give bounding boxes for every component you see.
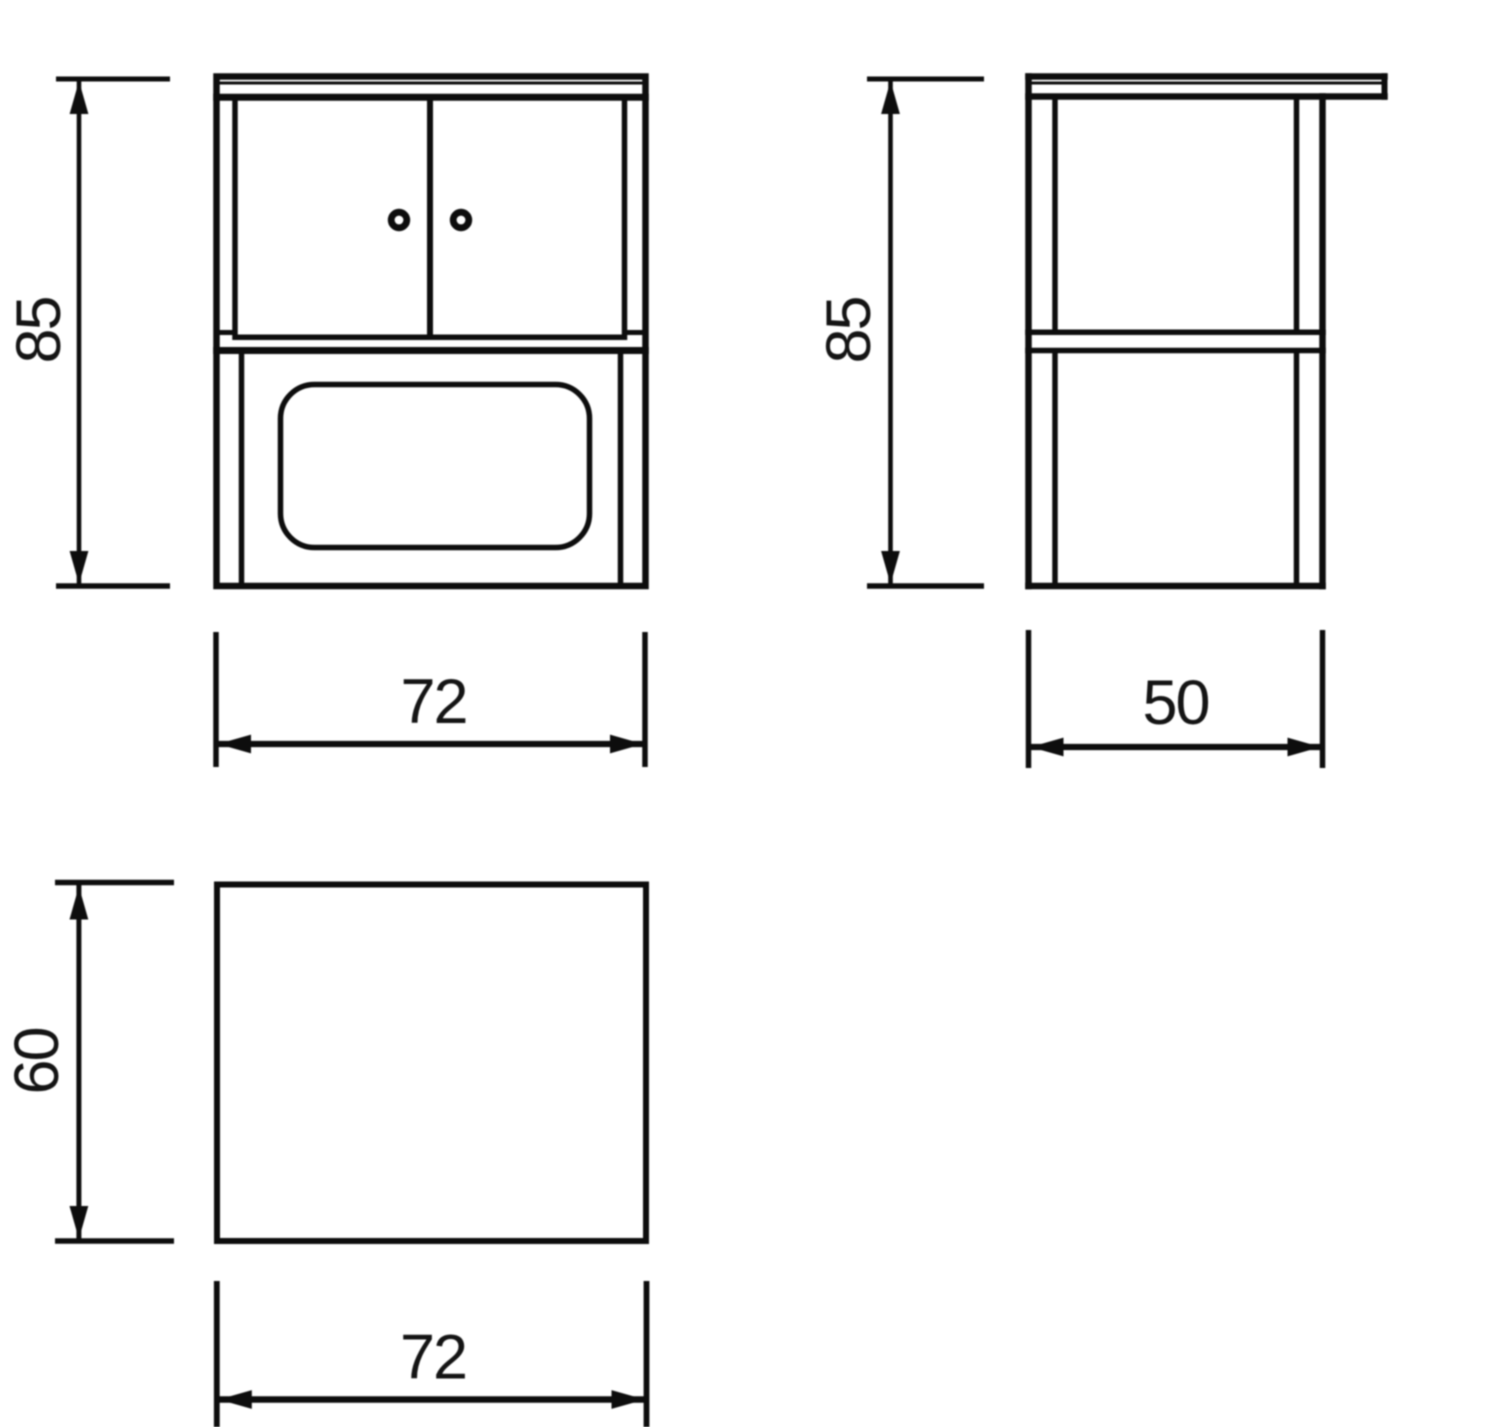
svg-text:50: 50 (1142, 668, 1208, 738)
svg-text:85: 85 (814, 297, 884, 363)
svg-text:72: 72 (400, 667, 466, 737)
svg-text:72: 72 (400, 1323, 466, 1393)
svg-text:85: 85 (4, 297, 74, 363)
svg-text:60: 60 (2, 1028, 72, 1094)
